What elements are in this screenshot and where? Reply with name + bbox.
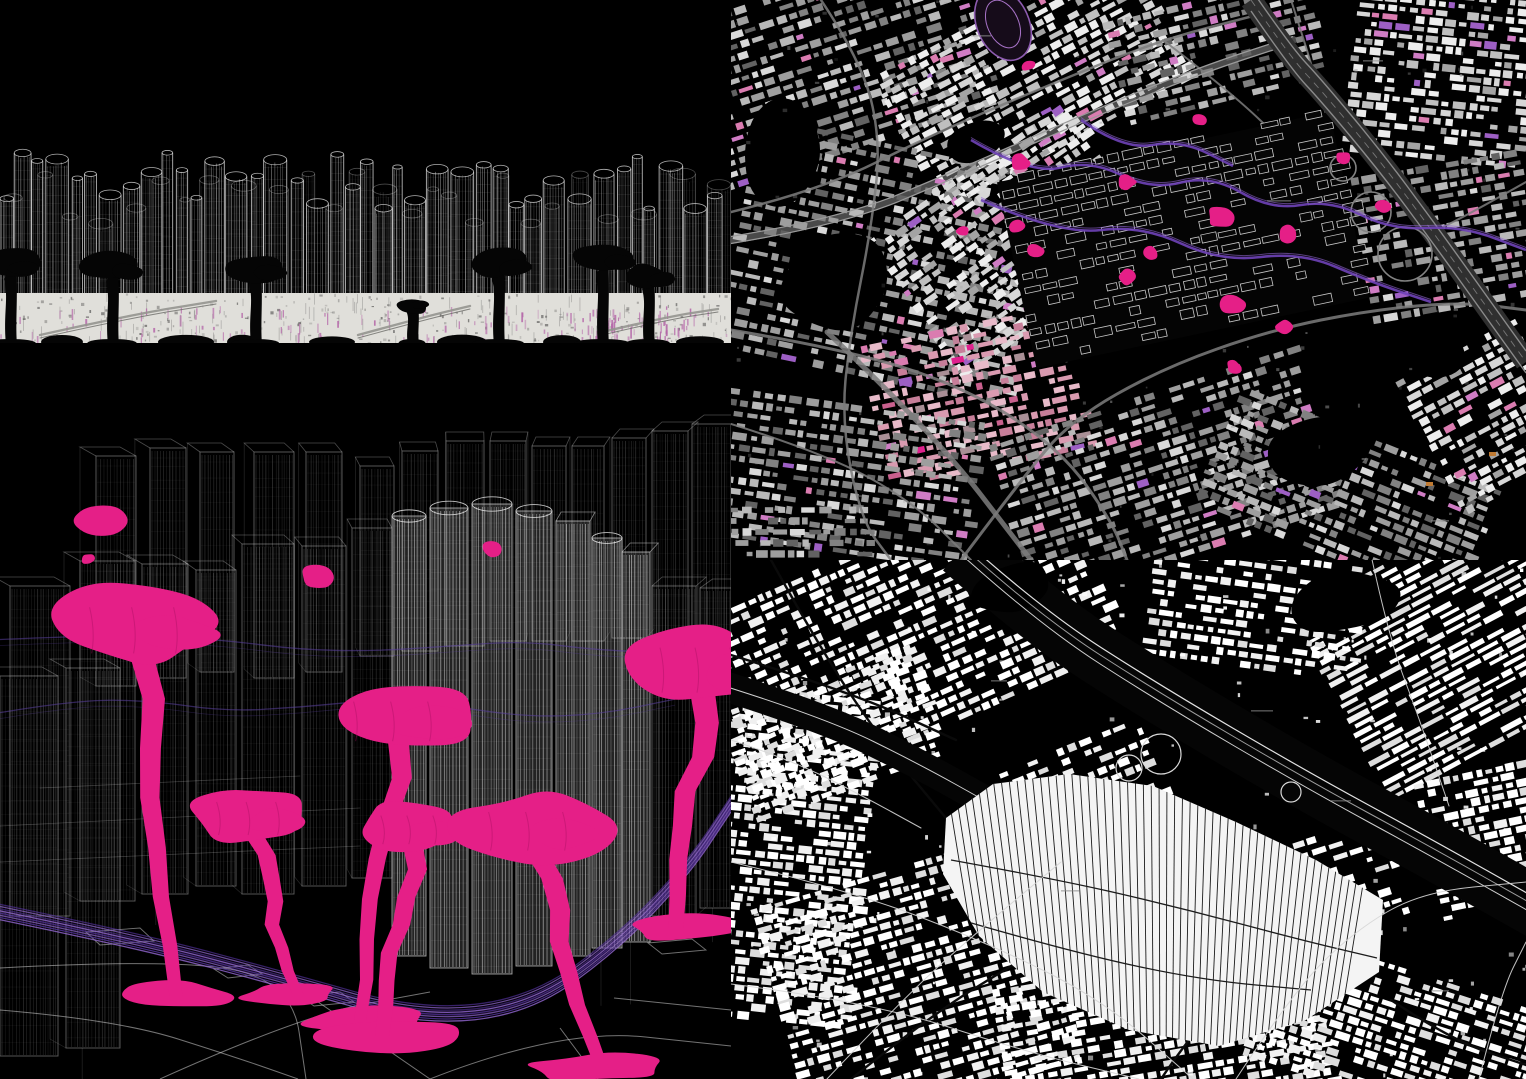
figure-ground-map-panel	[731, 560, 1526, 1079]
wireframe-perspective-panel	[0, 356, 731, 1079]
wireframe-elevation-panel	[0, 0, 731, 356]
urban-design-collage	[0, 0, 1526, 1079]
dark-urban-map-panel	[731, 0, 1526, 560]
ground-strip	[0, 343, 731, 356]
